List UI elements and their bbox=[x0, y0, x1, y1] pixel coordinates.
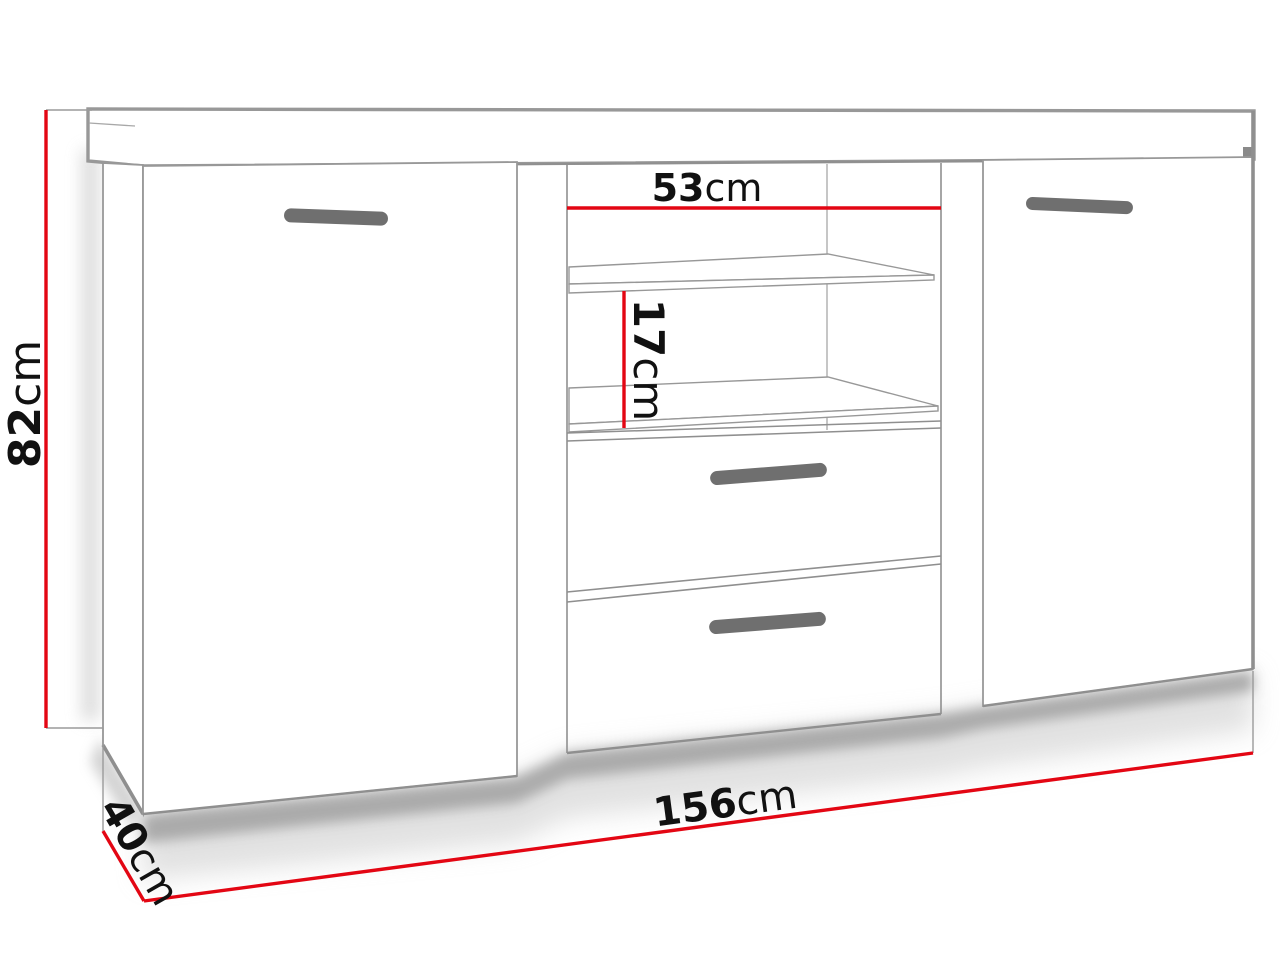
inner-width-label: 53cm bbox=[652, 166, 763, 210]
shelf-upper bbox=[569, 254, 934, 293]
drawer-divider-upper-line bbox=[567, 556, 941, 592]
drawer-divider-lower-line bbox=[567, 564, 941, 602]
right-door bbox=[983, 157, 1253, 706]
shelf-gap-label: 17cm bbox=[624, 299, 673, 421]
left-side-shadow bbox=[82, 150, 99, 720]
drawer-upper-handle bbox=[710, 462, 828, 485]
left-door bbox=[143, 162, 517, 814]
drawer-lower-handle bbox=[709, 611, 827, 634]
height-label: 82cm bbox=[0, 340, 51, 468]
cabinet-top-board bbox=[88, 109, 1254, 166]
furniture-dimension-diagram: 82cm 53cm 17cm 156cm 40cm bbox=[0, 0, 1280, 960]
drawer-upper-top-edge bbox=[567, 428, 941, 441]
diagram-canvas: 82cm 53cm 17cm 156cm 40cm bbox=[0, 0, 1280, 960]
left-side-panel bbox=[103, 163, 143, 814]
